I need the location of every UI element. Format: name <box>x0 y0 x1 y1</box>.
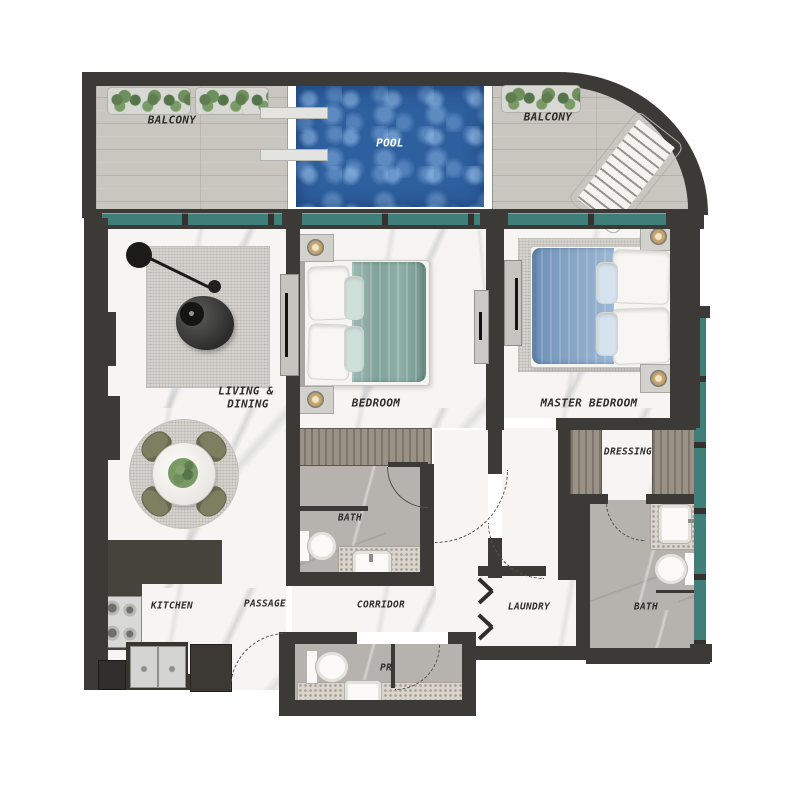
window-living <box>102 213 282 225</box>
wall-dressing-bottom-left <box>570 494 608 504</box>
corridor-label: CORRIDOR <box>357 600 405 611</box>
dressing-wardrobe-right <box>652 428 696 498</box>
master-tv-console <box>504 260 522 346</box>
wall-pr-top-left <box>279 632 357 644</box>
master-tv <box>515 278 518 330</box>
kitchen-sink-basin-right <box>158 646 186 688</box>
master-pillow-1 <box>611 249 671 305</box>
pool-label: POOL <box>376 137 404 150</box>
wall-pr-bottom <box>279 700 476 716</box>
dressing-label: DRESSING <box>604 447 652 458</box>
wall-hall-left-upper <box>488 430 502 474</box>
kitchen-tall-cabinet <box>190 644 232 692</box>
laundry-label: LAUNDRY <box>508 602 550 613</box>
bath2-towel-rail <box>656 590 694 593</box>
floor-plan: BALCONY POOL BALCONY LIVING & DINING BED… <box>0 0 800 800</box>
bedroom-wardrobe <box>296 428 432 466</box>
bath1-toilet-bowl <box>307 531 337 561</box>
window-bedroom <box>302 213 480 225</box>
balcony-left-label: BALCONY <box>148 114 196 127</box>
wall-left-column-a <box>88 312 116 366</box>
bedroom-door-handle <box>479 312 482 340</box>
balcony-right-label: BALCONY <box>524 111 572 124</box>
wall-left-column-b <box>96 396 120 460</box>
master-pillow-4 <box>596 312 618 356</box>
dressing-wardrobe-left <box>570 428 602 498</box>
side-table-dot <box>189 311 194 316</box>
master-lamp-bottom <box>650 370 667 387</box>
window-master <box>508 213 666 225</box>
kitchen-label: KITCHEN <box>151 601 193 612</box>
entry-column <box>98 660 126 690</box>
wall-bath1-bottom <box>286 572 434 586</box>
master-pillow-2 <box>611 307 671 365</box>
wall-master-bath-bottom <box>586 648 710 664</box>
wall-right-cap-top <box>692 306 710 318</box>
wall-dressing-left <box>558 418 570 504</box>
master-lamp-top <box>650 228 667 245</box>
planter-right <box>502 86 580 112</box>
bath1-half-wall <box>296 506 368 511</box>
passage-label: PASSAGE <box>244 599 286 610</box>
floor-lamp-shade <box>126 242 152 268</box>
pr-toilet-bowl <box>315 651 349 683</box>
wall-top <box>82 72 500 86</box>
living-dining-label-line2: DINING <box>227 398 269 411</box>
living-tv-console <box>280 274 299 376</box>
kitchen-sink-basin-left <box>130 646 158 688</box>
floor-lamp-joint <box>208 280 221 293</box>
pool-step-rail-top <box>260 107 328 119</box>
wall-duct-block <box>558 500 590 580</box>
kitchen-counter-top <box>98 540 222 584</box>
wall-living-bedroom <box>286 212 300 586</box>
bath2-label: BATH <box>634 602 658 613</box>
bedroom-label: BEDROOM <box>352 397 400 410</box>
bedroom-pillow-4 <box>344 326 364 372</box>
pr-label: PR <box>380 663 392 674</box>
wall-balcony-left <box>82 72 96 218</box>
wall-laundry-bottom <box>474 646 590 660</box>
sofa-side-table <box>180 302 204 326</box>
bath1-label: BATH <box>338 513 362 524</box>
pool-step-rail-bottom <box>260 149 328 161</box>
table-plant <box>168 458 198 488</box>
bath2-toilet-bowl <box>654 553 688 585</box>
living-tv <box>285 293 288 357</box>
master-pillow-3 <box>596 262 618 304</box>
planter-left-2 <box>196 88 268 114</box>
planter-left-1 <box>108 88 190 114</box>
living-dining-label-line1: LIVING & <box>218 385 273 398</box>
bath2-sink <box>658 504 692 544</box>
bedroom-pillow-3 <box>344 276 364 320</box>
bedroom-lamp-bottom <box>307 391 324 408</box>
wall-pr-right <box>462 632 476 704</box>
wall-dressing-bottom-right <box>646 494 694 504</box>
wall-master-right <box>670 218 700 428</box>
bedroom-lamp-top <box>307 239 324 256</box>
wall-laundry-right <box>576 570 590 654</box>
master-bedroom-label: MASTER BEDROOM <box>541 397 638 410</box>
bath1-faucet <box>369 554 373 562</box>
